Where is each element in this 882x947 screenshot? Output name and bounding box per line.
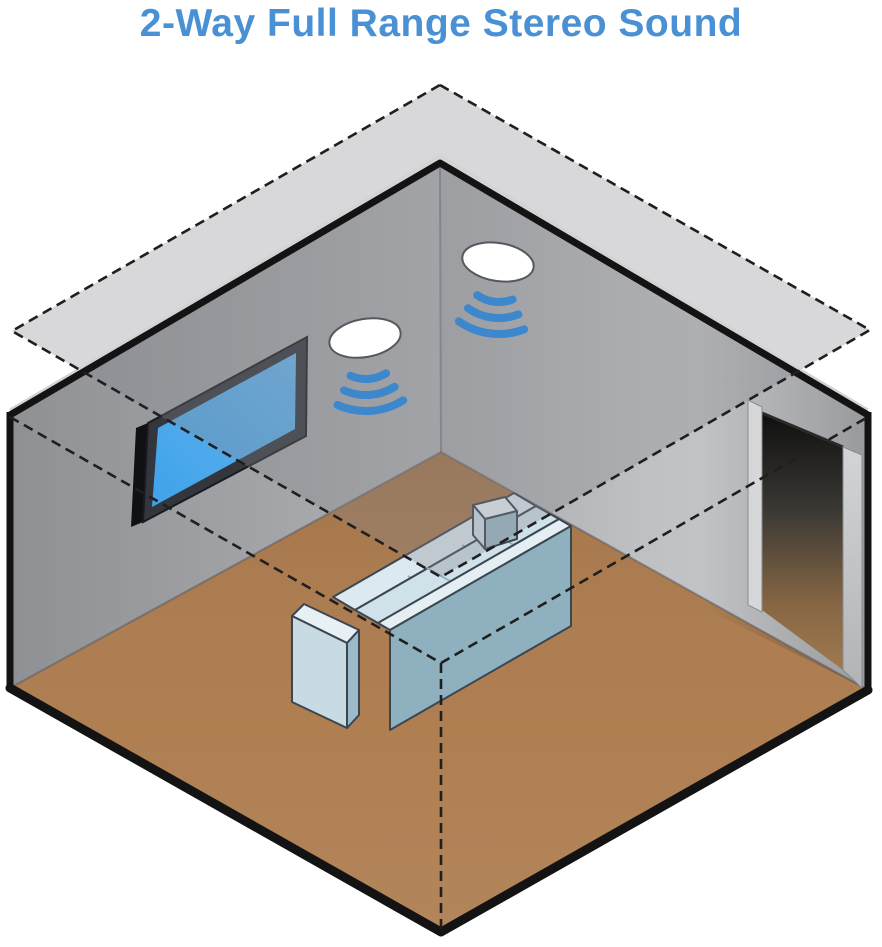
room-illustration [0,0,882,947]
product-diagram: 2-Way Full Range Stereo Sound [0,0,882,947]
doorway-left-jamb [748,400,762,612]
doorway-right-jamb [843,447,862,688]
couch-left-armrest-inner [347,630,359,728]
